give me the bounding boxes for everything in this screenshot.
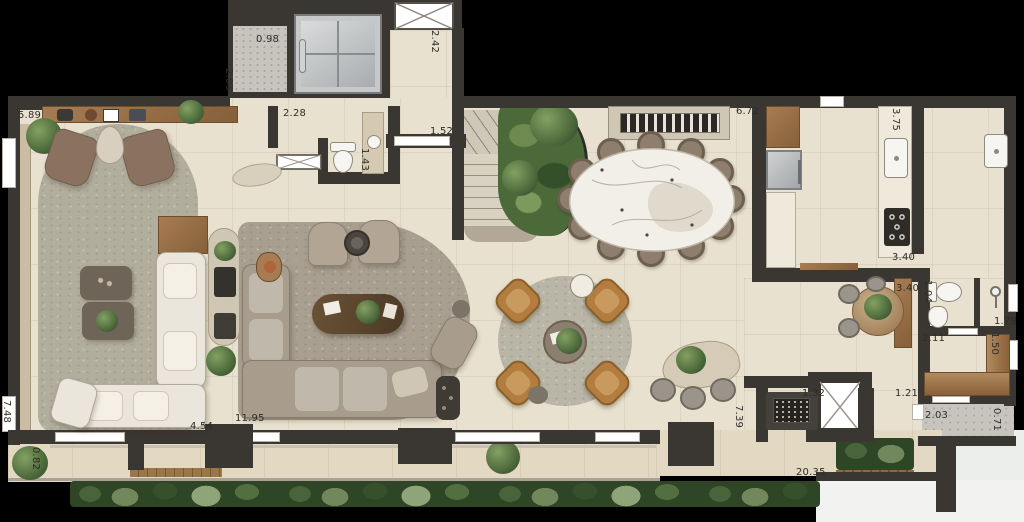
terrace-plant: [486, 440, 520, 474]
terrace-bush-left: [12, 446, 48, 480]
wood-side-table: [256, 252, 282, 282]
elevator-door-icon: [299, 39, 306, 73]
elevator-car-grid: [301, 21, 375, 87]
bath2-toilet: [928, 280, 964, 304]
lounge-cylinder-table: [570, 274, 594, 298]
sliding-door-3: [455, 432, 540, 442]
family-armchair-1: [308, 222, 348, 266]
elevator-core: [228, 0, 462, 98]
terracotta-bowl: [264, 261, 276, 273]
elevator-hall-floor: [390, 30, 454, 98]
breakfast-chair-3: [866, 276, 886, 292]
window-right-1: [1008, 284, 1018, 312]
garden-fern: [502, 160, 538, 196]
wall-dining-kitchen: [752, 96, 766, 272]
media-divider-console: [208, 228, 240, 346]
facade-pillar-1: [128, 430, 144, 470]
coffee-decor-card: [382, 303, 397, 319]
bar-bottles: [620, 113, 720, 133]
balcony-door: [912, 404, 924, 420]
coffee-decor-book: [323, 300, 341, 315]
console-basket-icon: [57, 109, 73, 121]
hedge-row: [70, 481, 820, 507]
breakfast-chair-1: [838, 284, 860, 304]
planter-right: [836, 438, 914, 470]
entry-console: [42, 106, 238, 123]
turntable-icon: [214, 313, 236, 339]
kitchen-pantry: [766, 106, 800, 148]
bar-console: [608, 106, 730, 140]
service-sink: [984, 134, 1008, 168]
sliding-door-1: [55, 432, 125, 442]
stool-table-plant: [676, 346, 706, 374]
window-left-lower: [2, 396, 16, 432]
coffee-decor-plant: [356, 300, 380, 324]
entry-closet-icon: [276, 154, 322, 170]
toilet2-bowl: [936, 282, 962, 302]
floor-plan: 5.890.982.032.422.281.521.436.723.753.40…: [0, 0, 1024, 522]
kitchen-sink: [884, 138, 908, 178]
elevator-car: [296, 16, 380, 92]
wall-stair-left: [452, 28, 464, 240]
coffee-table-plant: [96, 310, 118, 332]
wall-balcony-bottom: [918, 436, 1016, 446]
wall-kitchen-right: [910, 96, 924, 254]
terrace-right-parapet: [816, 472, 942, 481]
technical-shaft: [233, 26, 287, 92]
sectional-horizontal: [242, 360, 442, 418]
facade-pillar-4: [668, 422, 714, 466]
window-left-upper: [2, 138, 16, 188]
family-pouf: [452, 300, 470, 318]
sectional-pillow: [390, 365, 429, 398]
facade-pillar-3: [398, 428, 452, 464]
sectional-cushion: [295, 367, 339, 411]
sectional-cushion: [343, 367, 387, 411]
sauna-door-opening: [932, 396, 970, 403]
lounge-table-plant: [556, 328, 582, 354]
console-tray-icon: [129, 109, 146, 121]
console-frame-icon: [103, 109, 119, 122]
wall-ledge-left: [20, 124, 31, 432]
service-faucet: [994, 149, 999, 154]
lavabo-sink: [367, 135, 381, 149]
bath-door-opening: [948, 328, 978, 335]
vestibule-door-opening: [394, 136, 450, 146]
hall-closet-icon: [394, 2, 454, 30]
divider-plant: [214, 241, 236, 261]
sauna-bench-horizontal: [924, 372, 1010, 396]
kitchen-cooktop: [884, 208, 910, 246]
sofa-cushion: [133, 391, 169, 421]
kitchen-faucet: [894, 156, 899, 161]
elevator2-car: [818, 380, 862, 434]
grill-counter: [766, 392, 818, 430]
coffee-table-oval: [312, 294, 404, 334]
pass-through-counter: [800, 263, 858, 270]
round-side-table-dark: [344, 230, 370, 256]
shower-hose-icon: [995, 296, 997, 308]
bar-cabinet-dark: [436, 376, 460, 420]
wall-corridor-stub: [858, 388, 874, 442]
dining-table-marble: [562, 140, 740, 258]
kitchen-fridge: [766, 150, 802, 190]
divider-floor-plant: [206, 346, 236, 376]
wall-entry-stub: [268, 106, 278, 148]
stool-3: [710, 378, 736, 402]
wall-outer-right-upper: [1004, 96, 1016, 288]
facade-pillar-2: [205, 424, 253, 468]
breakfast-chair-2: [838, 318, 860, 338]
sliding-door-4: [595, 432, 640, 442]
bath2-sink: [928, 306, 948, 328]
speaker-icon: [214, 267, 236, 297]
sofa-back-console: [158, 216, 208, 254]
console-plant: [178, 100, 204, 124]
service-door-opening: [820, 96, 844, 107]
wall-top-right: [464, 96, 1016, 108]
breakfast-plant: [864, 294, 892, 320]
sofa-cushion: [163, 331, 197, 371]
lavabo-toilet: [330, 142, 356, 174]
sliding-door-2: [250, 432, 280, 442]
grill-grate: [773, 398, 810, 423]
kitchen-counter-left: [766, 192, 796, 268]
lounge-pouf: [528, 386, 548, 404]
sofa-cushion: [163, 263, 197, 299]
sectional-cushion: [249, 319, 283, 361]
lavabo-vanity: [362, 112, 384, 174]
wall-above-elevator2: [744, 376, 814, 388]
fridge-handle: [798, 160, 801, 184]
sofa-white-vertical: [156, 252, 206, 388]
wall-shower-partition: [974, 278, 980, 330]
coffee-table-1: [80, 266, 132, 300]
side-table-top: [351, 237, 363, 249]
coffee-table-decor: [94, 274, 116, 290]
console-bowl-icon: [85, 109, 97, 121]
toilet-bowl: [333, 150, 353, 173]
stool-1: [650, 378, 676, 402]
stool-2: [680, 386, 706, 410]
